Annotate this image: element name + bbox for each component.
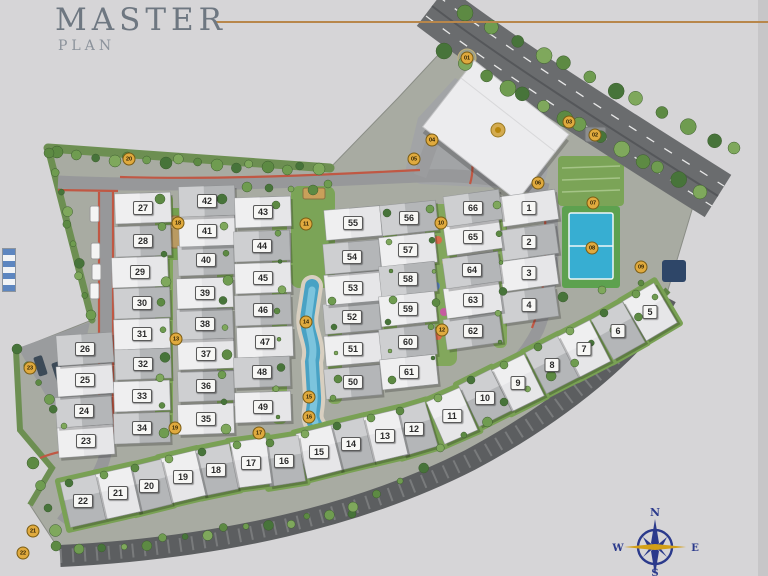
unit-marker-58[interactable]: 58 <box>398 272 418 286</box>
amenity-marker-08[interactable]: 08 <box>586 242 599 255</box>
unit-marker-51[interactable]: 51 <box>343 342 363 356</box>
amenity-marker-16[interactable]: 16 <box>303 411 316 424</box>
amenity-marker-03[interactable]: 03 <box>563 116 576 129</box>
unit-marker-56[interactable]: 56 <box>399 211 419 225</box>
unit-marker-57[interactable]: 57 <box>398 243 418 257</box>
master-plan-page: { "title": { "heading": "MASTER", "subhe… <box>0 0 768 576</box>
unit-marker-44[interactable]: 44 <box>252 239 272 253</box>
compass-needle <box>624 544 686 550</box>
unit-marker-40[interactable]: 40 <box>196 253 216 267</box>
unit-marker-26[interactable]: 26 <box>75 342 95 356</box>
amenity-marker-23[interactable]: 23 <box>24 362 37 375</box>
amenity-marker-01[interactable]: 01 <box>461 52 474 65</box>
unit-marker-20[interactable]: 20 <box>139 479 159 493</box>
unit-marker-62[interactable]: 62 <box>463 324 483 338</box>
unit-marker-25[interactable]: 25 <box>75 373 95 387</box>
amenity-marker-07[interactable]: 07 <box>587 197 600 210</box>
amenity-marker-20[interactable]: 20 <box>123 153 136 166</box>
unit-marker-37[interactable]: 37 <box>196 347 216 361</box>
unit-marker-39[interactable]: 39 <box>195 286 215 300</box>
compass-e: E <box>691 543 699 554</box>
unit-marker-43[interactable]: 43 <box>253 205 273 219</box>
unit-marker-27[interactable]: 27 <box>133 201 153 215</box>
unit-marker-11[interactable]: 11 <box>442 409 462 423</box>
compass-w: W <box>611 543 624 554</box>
unit-marker-33[interactable]: 33 <box>132 389 152 403</box>
right-edge-band <box>758 0 768 576</box>
amenity-marker-06[interactable]: 06 <box>532 177 545 190</box>
compass-rose: N W E S <box>610 505 705 576</box>
unit-marker-42[interactable]: 42 <box>197 194 217 208</box>
unit-marker-3[interactable]: 3 <box>521 266 536 280</box>
amenity-marker-04[interactable]: 04 <box>426 134 439 147</box>
unit-marker-66[interactable]: 66 <box>463 201 483 215</box>
unit-marker-21[interactable]: 21 <box>108 486 128 500</box>
unit-marker-24[interactable]: 24 <box>74 404 94 418</box>
unit-marker-48[interactable]: 48 <box>252 365 272 379</box>
unit-marker-22[interactable]: 22 <box>73 494 93 508</box>
unit-marker-18[interactable]: 18 <box>206 463 226 477</box>
unit-marker-46[interactable]: 46 <box>253 303 273 317</box>
striped-banner <box>2 248 16 292</box>
unit-marker-13[interactable]: 13 <box>375 429 395 443</box>
unit-marker-49[interactable]: 49 <box>253 400 273 414</box>
unit-marker-15[interactable]: 15 <box>309 445 329 459</box>
amenity-marker-11[interactable]: 11 <box>300 218 313 231</box>
unit-marker-54[interactable]: 54 <box>342 250 362 264</box>
unit-marker-64[interactable]: 64 <box>462 263 482 277</box>
unit-marker-5[interactable]: 5 <box>642 305 657 319</box>
unit-marker-45[interactable]: 45 <box>253 271 273 285</box>
unit-marker-60[interactable]: 60 <box>398 335 418 349</box>
unit-marker-9[interactable]: 9 <box>510 376 525 390</box>
amenity-marker-05[interactable]: 05 <box>408 153 421 166</box>
amenity-marker-17[interactable]: 17 <box>253 427 266 440</box>
unit-marker-10[interactable]: 10 <box>475 391 495 405</box>
unit-marker-30[interactable]: 30 <box>132 296 152 310</box>
unit-marker-32[interactable]: 32 <box>133 357 153 371</box>
unit-marker-28[interactable]: 28 <box>133 234 153 248</box>
amenity-marker-19[interactable]: 19 <box>169 422 182 435</box>
unit-marker-63[interactable]: 63 <box>463 293 483 307</box>
unit-marker-7[interactable]: 7 <box>576 342 591 356</box>
half-court <box>662 260 686 282</box>
amenity-marker-21[interactable]: 21 <box>27 525 40 538</box>
title-rule <box>215 21 768 23</box>
compass-s: S <box>651 568 658 576</box>
unit-marker-6[interactable]: 6 <box>610 324 625 338</box>
unit-marker-23[interactable]: 23 <box>76 434 96 448</box>
unit-marker-53[interactable]: 53 <box>343 281 363 295</box>
title-plan: PLAN <box>58 38 227 54</box>
unit-marker-36[interactable]: 36 <box>196 379 216 393</box>
amenity-marker-02[interactable]: 02 <box>589 129 602 142</box>
amenity-marker-13[interactable]: 13 <box>170 333 183 346</box>
unit-marker-47[interactable]: 47 <box>255 335 275 349</box>
amenity-marker-12[interactable]: 12 <box>436 324 449 337</box>
unit-marker-34[interactable]: 34 <box>132 421 152 435</box>
unit-marker-17[interactable]: 17 <box>241 456 261 470</box>
title-master: MASTER <box>55 4 227 37</box>
unit-marker-35[interactable]: 35 <box>196 412 216 426</box>
unit-marker-61[interactable]: 61 <box>399 365 419 379</box>
unit-marker-50[interactable]: 50 <box>343 375 363 389</box>
unit-marker-1[interactable]: 1 <box>521 201 536 215</box>
unit-marker-4[interactable]: 4 <box>521 298 536 312</box>
unit-marker-12[interactable]: 12 <box>404 422 424 436</box>
unit-marker-38[interactable]: 38 <box>195 317 215 331</box>
unit-marker-52[interactable]: 52 <box>342 310 362 324</box>
unit-marker-2[interactable]: 2 <box>521 235 536 249</box>
unit-marker-29[interactable]: 29 <box>130 265 150 279</box>
amenity-marker-22[interactable]: 22 <box>17 547 30 560</box>
unit-marker-41[interactable]: 41 <box>197 224 217 238</box>
amenity-marker-18[interactable]: 18 <box>172 217 185 230</box>
unit-marker-65[interactable]: 65 <box>463 230 483 244</box>
unit-marker-8[interactable]: 8 <box>544 358 559 372</box>
page-title: MASTER PLAN <box>55 4 227 54</box>
amenity-marker-15[interactable]: 15 <box>303 391 316 404</box>
unit-marker-55[interactable]: 55 <box>343 216 363 230</box>
amenity-marker-14[interactable]: 14 <box>300 316 313 329</box>
unit-marker-59[interactable]: 59 <box>398 302 418 316</box>
amenity-marker-09[interactable]: 09 <box>635 261 648 274</box>
unit-marker-19[interactable]: 19 <box>173 470 193 484</box>
unit-marker-14[interactable]: 14 <box>341 437 361 451</box>
unit-marker-31[interactable]: 31 <box>132 327 152 341</box>
compass-n: N <box>650 506 660 519</box>
unit-marker-16[interactable]: 16 <box>274 454 294 468</box>
amenity-marker-10[interactable]: 10 <box>435 217 448 230</box>
